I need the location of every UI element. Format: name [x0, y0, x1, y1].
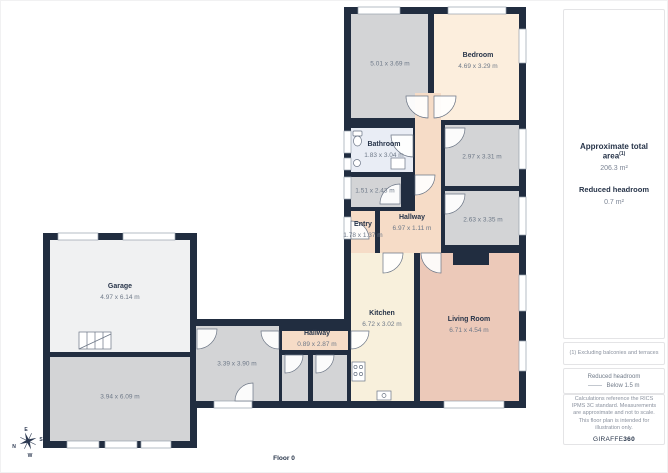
- total-area-footnote-marker: (1): [619, 151, 625, 157]
- brand-logo: GIRAFFE360: [593, 436, 635, 443]
- brand-suffix: 360: [623, 436, 635, 443]
- total-area-label: Approximate total area(1): [569, 142, 659, 161]
- total-area-label-text: Approximate total area: [580, 142, 648, 161]
- legend-panel: Reduced headroom Below 1.5 m: [563, 368, 665, 394]
- footnote-text: (1) Excluding balconies and terraces: [570, 350, 659, 357]
- disclaimer-text: Calculations reference the RICS IPMS 3C …: [570, 396, 658, 432]
- shower-icon: [391, 158, 405, 169]
- stairs-icon: [79, 332, 111, 349]
- headroom-value: 0.7 m²: [604, 199, 624, 206]
- kitchen-sink-icon: [377, 391, 391, 400]
- chimney-block: [453, 253, 489, 265]
- floor-label: Floor 0: [234, 455, 334, 462]
- headroom-label: Reduced headroom: [579, 185, 649, 194]
- brand-name: GIRAFFE: [593, 436, 623, 443]
- toilet-icon: [353, 131, 362, 146]
- legend-title: Reduced headroom: [588, 374, 641, 380]
- floors-layer: [50, 14, 519, 441]
- bathroom-sink-icon: [354, 160, 361, 167]
- compass-west-label: W: [28, 453, 33, 459]
- compass-north-label: N: [12, 444, 16, 450]
- legend-item-text: Below 1.5 m: [606, 383, 639, 389]
- summary-panel: Approximate total area(1) 206.3 m² Reduc…: [563, 9, 665, 339]
- compass-south-label: S: [39, 437, 43, 443]
- disclaimer-panel: Calculations reference the RICS IPMS 3C …: [563, 394, 665, 445]
- stove-icon: [352, 362, 365, 381]
- legend-row: Below 1.5 m: [588, 383, 639, 389]
- compass-icon: E S N W: [12, 427, 43, 459]
- compass-east-label: E: [24, 427, 28, 433]
- footnote-panel: (1) Excluding balconies and terraces: [563, 342, 665, 365]
- floorplan-page: E S N W 5.01 x 3.69 m Bedroom 4.69 x 3.2…: [0, 0, 668, 473]
- reduced-headroom-line-icon: [588, 385, 602, 386]
- total-area-value: 206.3 m²: [600, 165, 628, 172]
